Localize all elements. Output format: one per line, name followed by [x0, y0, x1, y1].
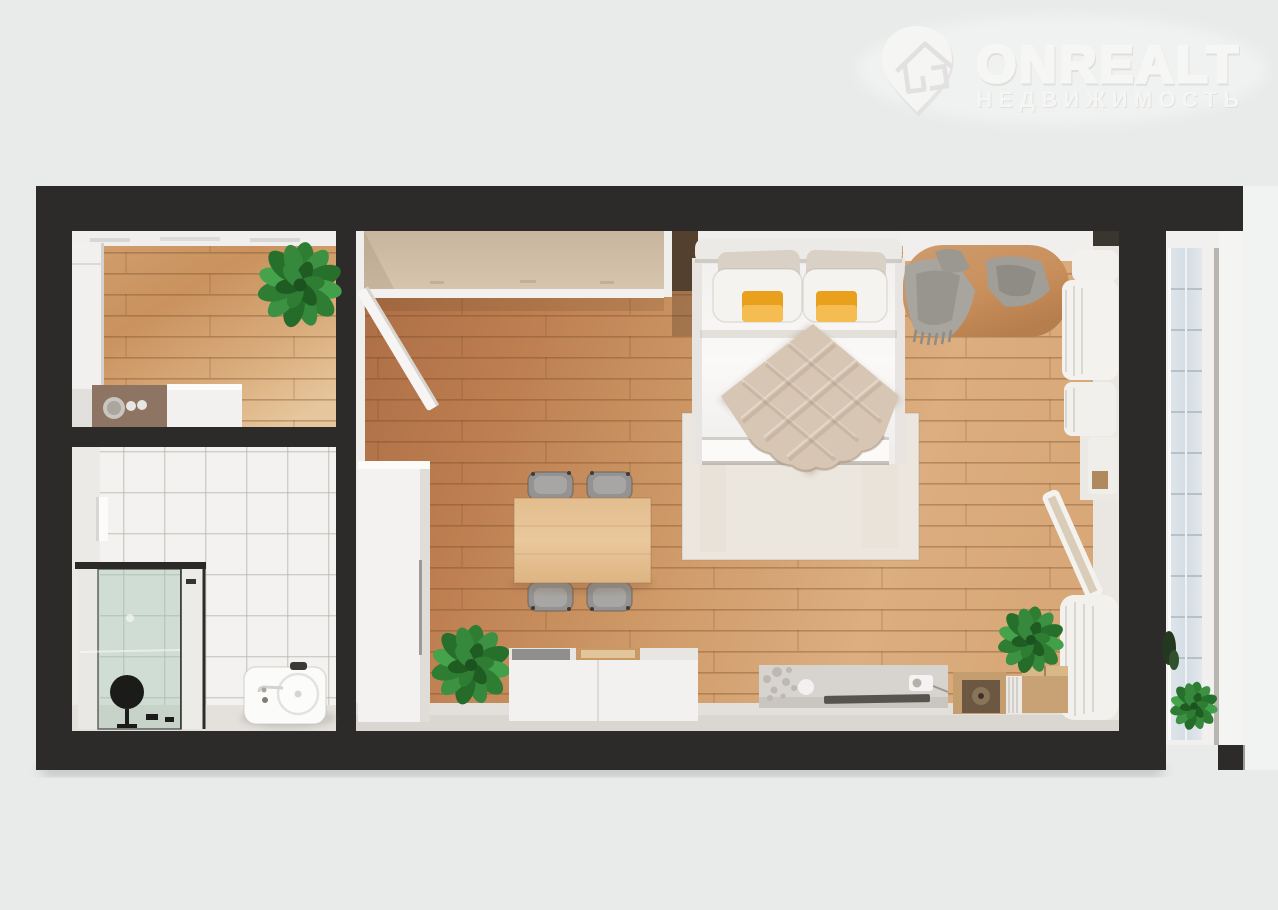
- svg-text:ONREALT: ONREALT: [976, 36, 1238, 94]
